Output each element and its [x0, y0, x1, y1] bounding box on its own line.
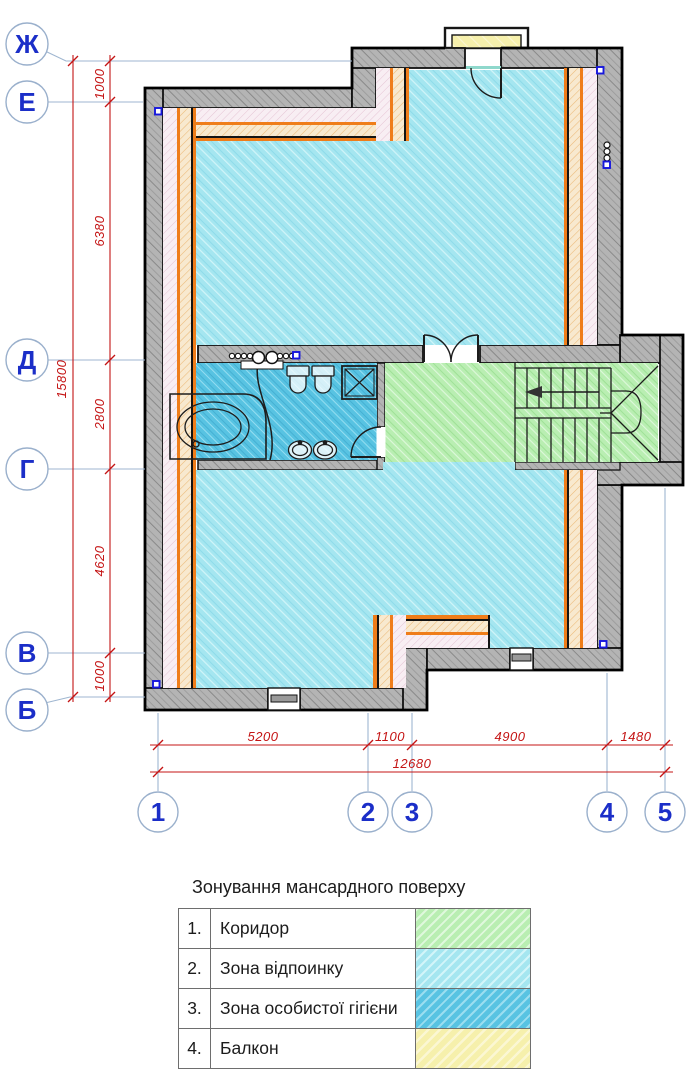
wall-top-left	[145, 88, 352, 108]
band-right-upper	[564, 68, 597, 345]
legend-title: Зонування мансардного поверху	[192, 877, 465, 898]
wall-bath-right-a	[377, 363, 385, 427]
band-right-lower	[564, 470, 597, 648]
wall-right-upper	[597, 48, 622, 345]
axis-label-zh: Ж	[14, 29, 39, 59]
dim-height-4: 1000	[92, 660, 107, 691]
riser-stack-right-wall	[604, 142, 610, 161]
band-bottom-horizontal	[406, 615, 490, 648]
legend-row-label: Коридор	[211, 909, 416, 948]
legend-row-label: Балкон	[211, 1028, 416, 1068]
legend-row-label: Зона відпоинку	[211, 948, 416, 988]
balcony	[445, 28, 528, 48]
dim-overall-width: 12680	[393, 756, 432, 771]
axis-line-b	[45, 697, 145, 703]
axis-label-v: В	[18, 638, 37, 668]
window-bottom-right	[510, 648, 533, 670]
axis-label-b: Б	[18, 695, 37, 725]
toilet	[287, 366, 309, 393]
legend-row-label: Зона особистої гігієни	[211, 988, 416, 1028]
window-bottom-left	[268, 688, 300, 710]
wall-left	[145, 88, 163, 710]
zone-swatch-balcony	[416, 1028, 530, 1068]
axis-label-e: Е	[18, 87, 35, 117]
wall-bottom-right-b	[533, 648, 622, 670]
band-top-wall	[196, 108, 376, 141]
axis-label-5: 5	[658, 797, 672, 827]
axis-label-4: 4	[600, 797, 615, 827]
dim-width-0: 5200	[248, 729, 279, 744]
wall-top-a	[352, 48, 465, 68]
sink	[289, 441, 312, 459]
wall-middle-right	[480, 345, 620, 363]
legend-row-number: 1.	[179, 909, 211, 948]
zone-hygiene-bathroom	[196, 363, 377, 460]
axis-label-1: 1	[151, 797, 165, 827]
dim-height-2: 2800	[92, 398, 107, 430]
zone-swatch-rest	[416, 948, 530, 988]
axis-label-g: Г	[20, 454, 35, 484]
zone-swatch-corridor	[416, 909, 530, 948]
bidet	[312, 366, 334, 393]
dim-height-3: 4620	[92, 545, 107, 576]
dim-overall-height: 15800	[54, 359, 69, 398]
wall-bottom-step	[403, 648, 427, 710]
band-bottom-vertical	[373, 615, 406, 688]
sink	[314, 441, 337, 459]
axis-label-d: Д	[18, 345, 37, 375]
wall-stair-bottom	[515, 462, 620, 470]
wall-bath-bottom	[198, 460, 385, 470]
dim-width-2: 4900	[495, 729, 526, 744]
band-left-wall	[163, 108, 196, 688]
band-step	[376, 68, 409, 141]
axis-label-3: 3	[405, 797, 419, 827]
legend-row-number: 2.	[179, 948, 211, 988]
dim-width-3: 1480	[621, 729, 652, 744]
floor-plan-drawing: 15800 1000 6380 2800 4620 1000 5200 1100…	[0, 0, 696, 860]
dim-width-1: 1100	[375, 729, 405, 744]
balcony-floor	[452, 35, 521, 48]
dim-height-1: 6380	[92, 215, 107, 246]
wall-bottom-right-a	[427, 648, 510, 670]
wall-bottom-left-a	[145, 688, 268, 710]
floor-plan-page: 15800 1000 6380 2800 4620 1000 5200 1100…	[0, 0, 696, 1075]
axis-label-2: 2	[361, 797, 375, 827]
zone-swatch-hygiene	[416, 988, 530, 1028]
legend-row-number: 4.	[179, 1028, 211, 1068]
axis-line-zh	[45, 51, 352, 61]
dim-height-0: 1000	[92, 68, 107, 99]
legend-table: 1. Коридор 2. Зона відпоинку 3. Зона осо…	[178, 908, 531, 1069]
zone-corridor-stairs	[385, 363, 658, 462]
legend-row-number: 3.	[179, 988, 211, 1028]
